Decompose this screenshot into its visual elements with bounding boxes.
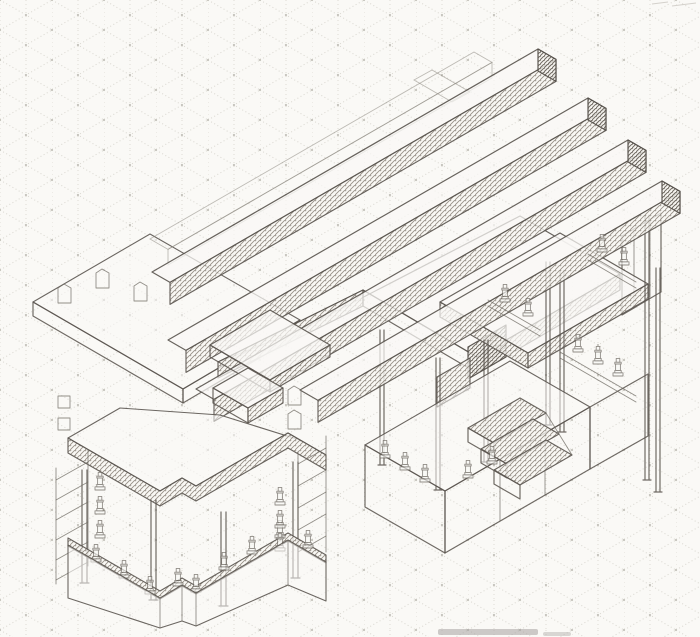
sketch-svg: Hand-drawn isometric architectural sketc… — [0, 0, 700, 637]
scan-smudge — [438, 629, 538, 635]
scan-smudge — [543, 632, 571, 636]
sketch-sheet: Axonometric pencil study of a terraced b… — [0, 0, 700, 637]
